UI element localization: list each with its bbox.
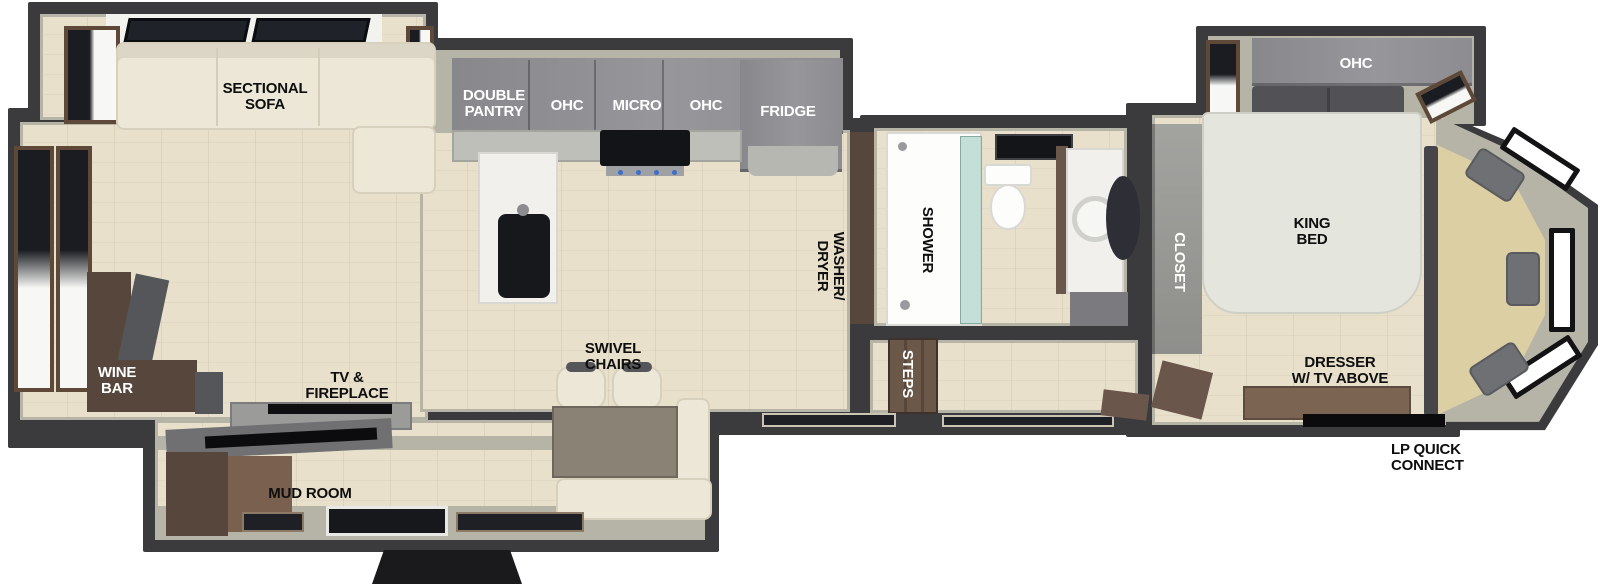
rv-floorplan-canvas: SECTIONAL SOFA DOUBLE PANTRY OHC MICRO O… xyxy=(0,0,1600,586)
label-ohc-kitchen-left: OHC xyxy=(551,98,584,114)
label-dresser-tv: DRESSER W/ TV ABOVE xyxy=(1292,355,1388,387)
washer-dryer-cabinet xyxy=(850,132,874,324)
toilet-tank xyxy=(984,164,1032,186)
label-shower: SHOWER xyxy=(919,207,935,273)
hallway-bottom-window xyxy=(942,415,1114,427)
label-closet: CLOSET xyxy=(1171,232,1187,292)
cooktop xyxy=(600,130,690,166)
mudroom-window-right xyxy=(456,512,584,532)
label-micro: MICRO xyxy=(613,98,662,114)
label-fridge: FRIDGE xyxy=(760,104,815,120)
bedroom-slide-window-left xyxy=(1206,40,1240,120)
shower-head-dot xyxy=(898,142,907,151)
cabinet-divider xyxy=(662,60,664,132)
fireplace-insert xyxy=(268,404,392,414)
bay-window-middle xyxy=(1549,228,1575,332)
kitchen-faucet xyxy=(517,204,529,216)
sofa-chaise xyxy=(352,126,436,194)
range-knob xyxy=(636,170,641,175)
kitchen-sink xyxy=(498,214,550,298)
mudroom-window-left xyxy=(242,512,304,532)
hallway-step-ramp xyxy=(1101,389,1150,420)
sofa-cushion-divider xyxy=(318,48,320,126)
label-mud-room: MUD ROOM xyxy=(268,486,351,502)
wine-bar-counter-end xyxy=(195,372,223,414)
corridor-bottom-window xyxy=(762,413,896,427)
entry-step-platform xyxy=(372,550,522,584)
toilet-bowl xyxy=(990,184,1026,230)
vanity-mirror xyxy=(1106,176,1140,260)
bay-cushion-middle xyxy=(1506,252,1540,306)
king-bed-mattress xyxy=(1202,112,1422,314)
dinette-table xyxy=(552,406,678,478)
bay-platform-rail xyxy=(1424,146,1438,416)
label-king-bed: KING BED xyxy=(1294,216,1331,248)
label-swivel-chairs: SWIVEL CHAIRS xyxy=(585,341,641,373)
label-wine-bar: WINE BAR xyxy=(98,365,136,397)
fridge-front-panel xyxy=(748,146,838,176)
vanity-base-cabinet xyxy=(1070,292,1128,326)
label-double-pantry: DOUBLE PANTRY xyxy=(463,88,525,120)
label-lp-quick-connect: LP QUICK CONNECT xyxy=(1391,442,1464,474)
skylight-window-right xyxy=(251,18,370,43)
mudroom-wardrobe xyxy=(166,452,228,536)
range-knob xyxy=(672,170,677,175)
cabinet-divider xyxy=(528,60,530,132)
range-knob xyxy=(618,170,623,175)
skylight-window-left xyxy=(123,18,250,43)
shower-head-dot xyxy=(900,300,910,310)
label-tv-fireplace: TV & FIREPLACE xyxy=(305,370,388,402)
label-washer-dryer: WASHER/ DRYER xyxy=(814,232,846,301)
label-ohc-kitchen-right: OHC xyxy=(690,98,723,114)
sofa-cushion-divider xyxy=(216,48,218,126)
entry-door xyxy=(326,506,448,536)
label-steps: STEPS xyxy=(899,350,915,398)
dresser-tv-screen xyxy=(1303,414,1445,427)
cabinet-divider xyxy=(594,60,596,132)
label-sectional-sofa: SECTIONAL SOFA xyxy=(223,81,308,113)
shower-glass-panel xyxy=(960,136,982,324)
label-ohc-bedroom: OHC xyxy=(1340,56,1373,72)
living-slide-window-left xyxy=(64,26,120,124)
rear-wall-window-left xyxy=(14,146,54,392)
range-knob xyxy=(654,170,659,175)
